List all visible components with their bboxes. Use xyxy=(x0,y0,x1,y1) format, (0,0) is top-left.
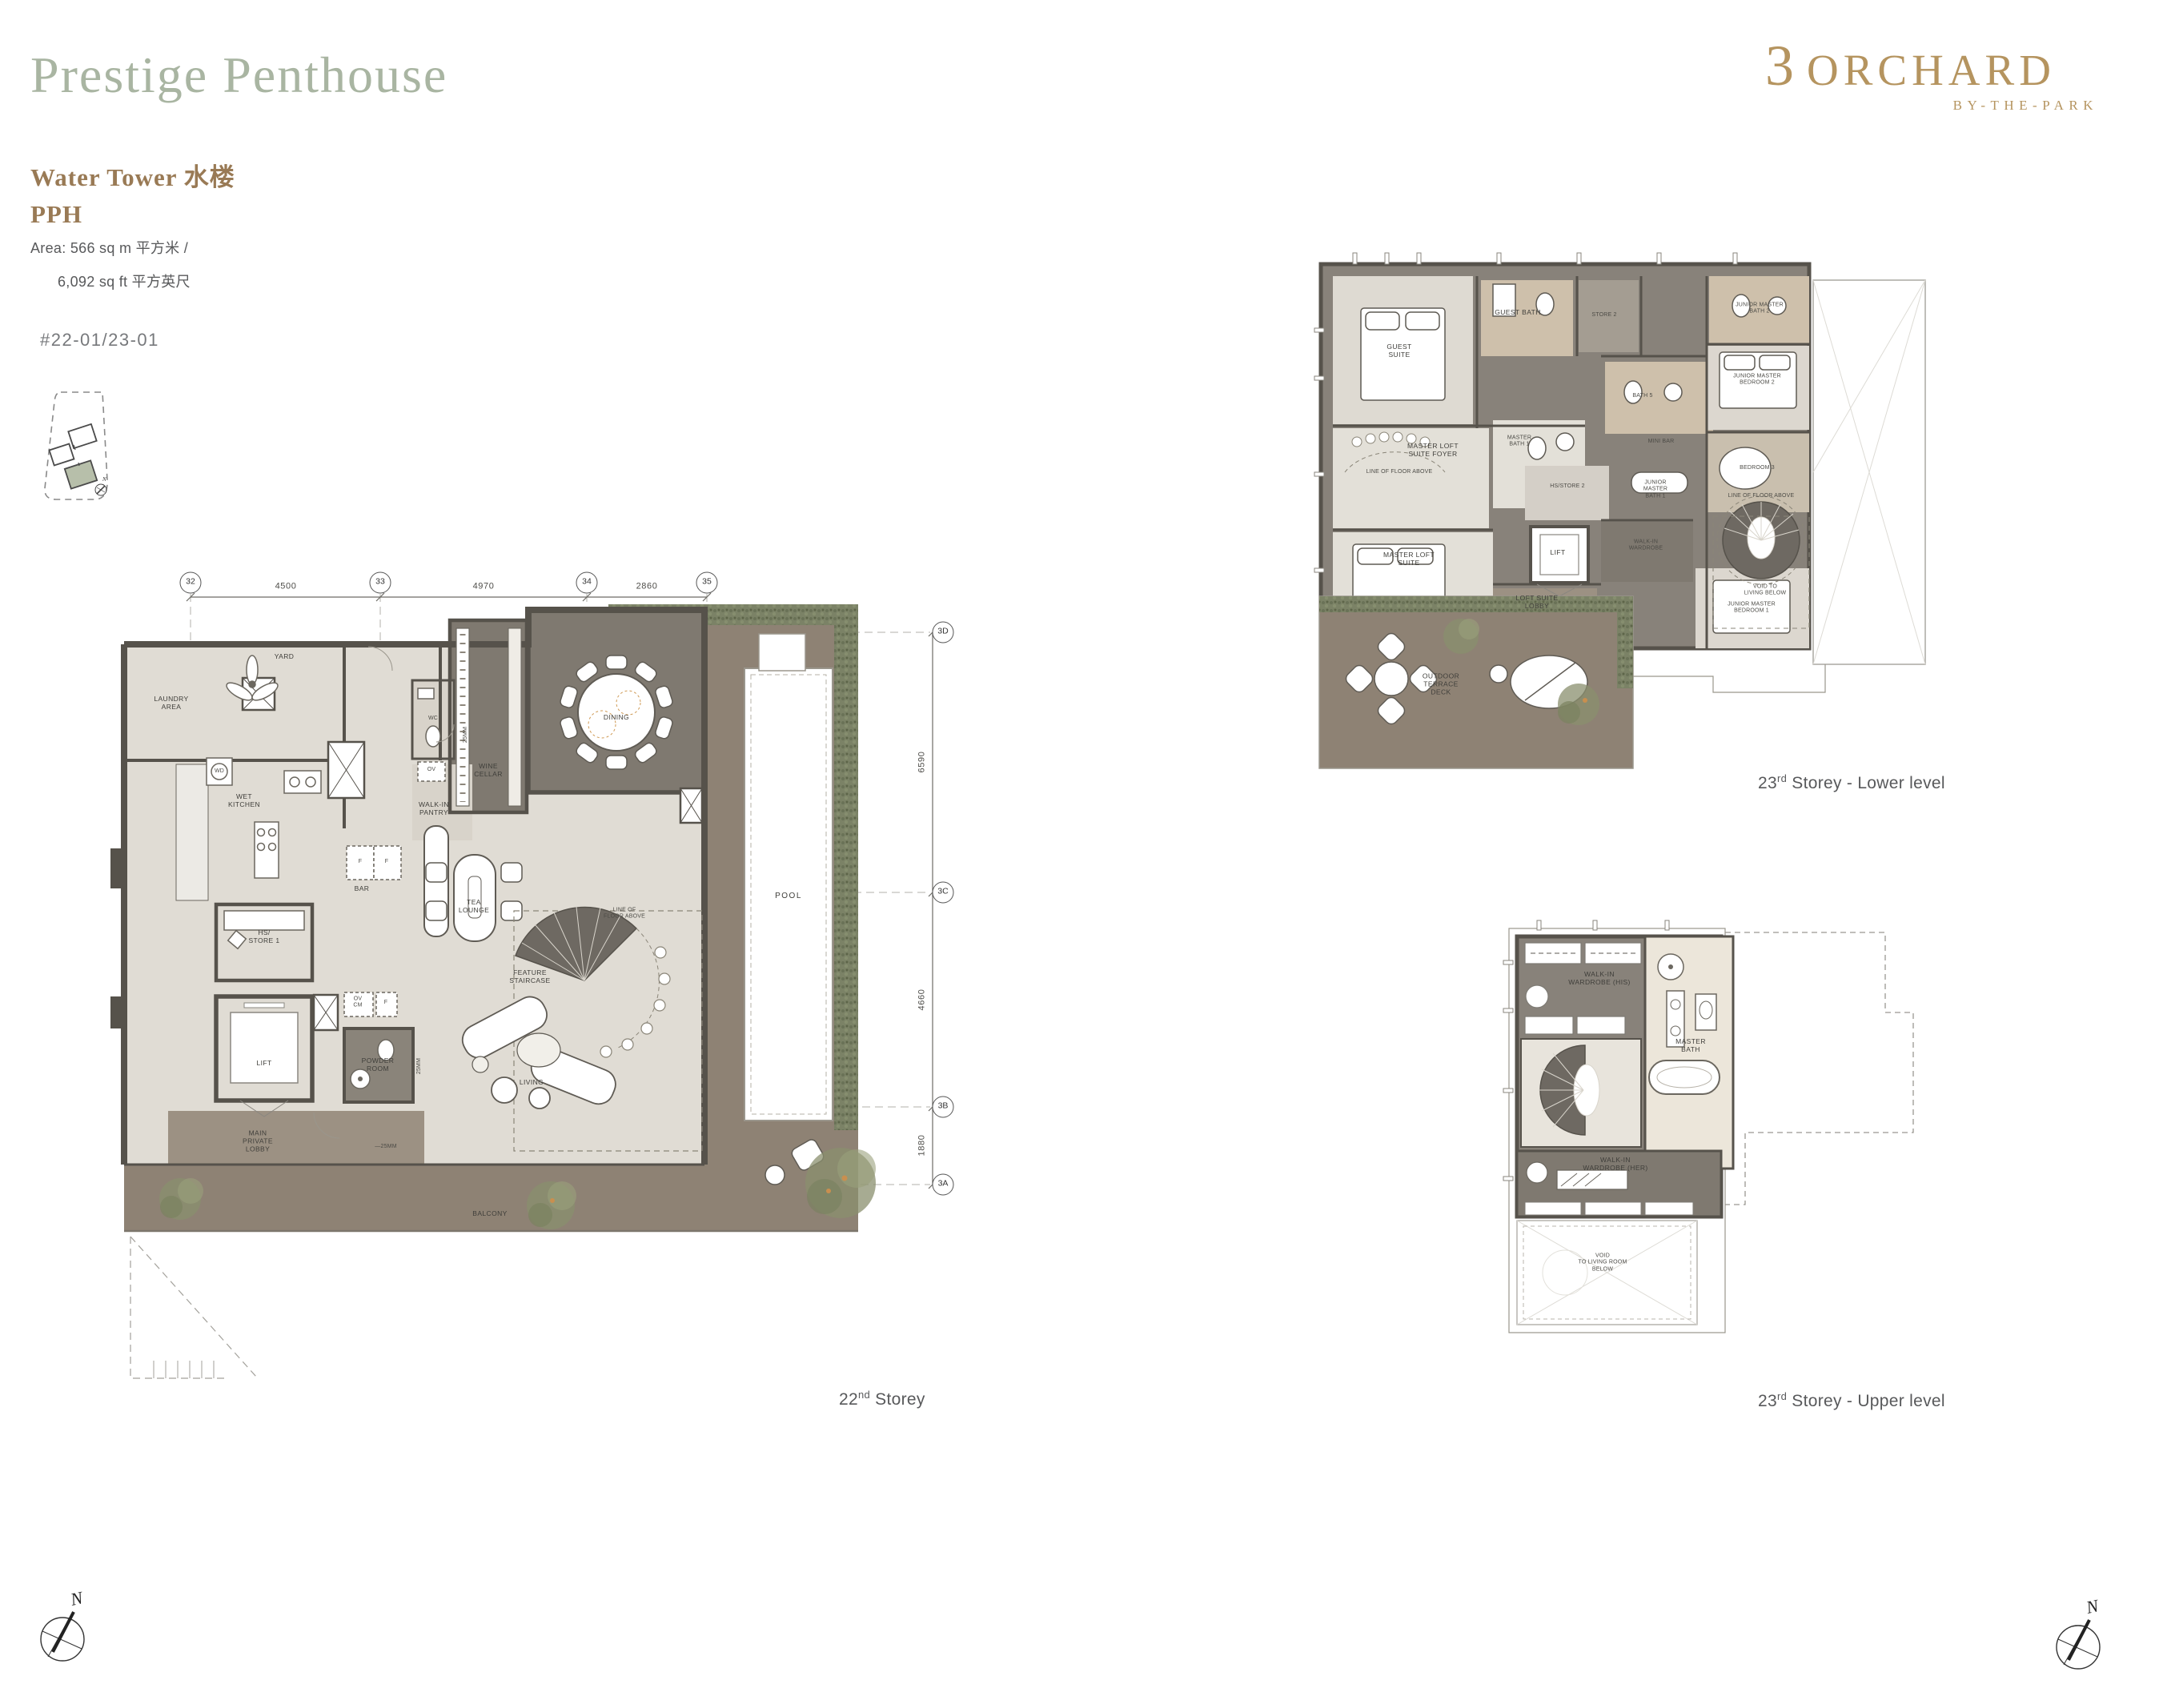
compass-left: N xyxy=(30,1586,102,1678)
plan-label: VOID TO LIVING ROOM BELOW xyxy=(1578,1253,1627,1273)
brochure-page: Prestige Penthouse Water Tower 水楼 PPH Ar… xyxy=(0,0,2159,1708)
plan-label: 3C xyxy=(933,882,954,904)
plan-label: WC xyxy=(428,716,438,722)
floor-plan-22-labels: 323334353D3C3B3A450049702860659046601880… xyxy=(104,560,985,1393)
unit-number: #22-01/23-01 xyxy=(40,331,159,349)
plan-label: 1880 xyxy=(917,1135,927,1157)
plan-label: WALK-IN PANTRY xyxy=(419,800,449,816)
plan-label: JUNIOR MASTER BEDROOM 2 xyxy=(1733,374,1781,387)
caption-text: Storey - Lower level xyxy=(1787,774,1945,792)
plan-label: HS/ STORE 1 xyxy=(248,928,279,944)
plan-label: 2860 xyxy=(636,581,658,591)
plan-label: 35 xyxy=(696,572,718,594)
plan-label: F xyxy=(384,1000,387,1006)
area-metric: Area: 566 sq m 平方米 / xyxy=(30,240,188,258)
tower-block-highlighted xyxy=(65,460,97,488)
plan-label: POOL xyxy=(775,892,802,901)
caption-ordinal: rd xyxy=(1777,772,1787,784)
plan-label: MASTER BATH xyxy=(1675,1037,1706,1053)
plan-label: LIVING xyxy=(520,1078,544,1086)
plan-label: OV xyxy=(427,767,436,773)
logo-tagline: BY-THE-PARK xyxy=(1765,98,2101,114)
plan-label: LOFT SUITE LOBBY xyxy=(1516,594,1559,610)
caption-number: 22 xyxy=(839,1390,858,1409)
plan-label: WALK-IN WARDROBE xyxy=(1629,539,1663,553)
caption-text: Storey - Upper level xyxy=(1787,1392,1945,1410)
plan-label: 25MM xyxy=(416,1058,423,1074)
plan-label: MAIN PRIVATE LOBBY xyxy=(243,1129,273,1154)
caption-number: 23 xyxy=(1758,774,1777,792)
compass-n-label: N xyxy=(2084,1595,2101,1618)
brand-logo: 3 ORCHARD BY-THE-PARK xyxy=(1765,37,2101,114)
unit-type: PPH xyxy=(30,202,82,227)
plan-label: 3B xyxy=(933,1097,954,1118)
site-compass-n: N xyxy=(102,476,106,483)
plan-label: HS/STORE 2 xyxy=(1550,483,1585,490)
plan-label: MINI BAR xyxy=(1648,439,1675,445)
floor-plan-23-lower: GUEST SUITEGUEST BATHSTORE 2JUNIOR MASTE… xyxy=(1297,232,1937,784)
plan-label: POWDER ROOM xyxy=(362,1056,395,1073)
floor-plan-23-upper: WALK-IN WARDROBE (HIS)MASTER BATHWALK-IN… xyxy=(1481,888,1937,1361)
caption-ordinal: nd xyxy=(858,1389,870,1401)
plan-label: 3A xyxy=(933,1174,954,1196)
plan-label: BALCONY xyxy=(472,1209,507,1217)
plan-label: WALK-IN WARDROBE (HER) xyxy=(1583,1156,1647,1172)
plan-label: WALK-IN WARDROBE (HIS) xyxy=(1568,970,1631,986)
compass-right: N xyxy=(2046,1594,2118,1686)
logo-name: ORCHARD xyxy=(1807,48,2056,92)
plan-label: WET KITCHEN xyxy=(228,792,260,808)
plan-label: VOID TO LIVING BELOW xyxy=(1744,584,1787,598)
plan-label: YARD xyxy=(275,652,295,660)
caption-23rd-lower: 23rd Storey - Lower level xyxy=(1758,773,1945,792)
plan-label: JUNIOR MASTER BATH 2 xyxy=(1736,303,1784,316)
plan-label: 4970 xyxy=(473,581,495,591)
plan-label: TEA LOUNGE xyxy=(459,898,489,914)
plan-label: MASTER LOFT SUITE FOYER xyxy=(1407,442,1459,458)
compass-n-label: N xyxy=(68,1587,86,1610)
logo-wordmark: 3 ORCHARD xyxy=(1765,37,2101,94)
caption-number: 23 xyxy=(1758,1392,1777,1410)
plan-label: LINE OF FLOOR ABOVE xyxy=(1366,469,1433,475)
plan-label: BATH 5 xyxy=(1632,393,1652,399)
plan-label: 33 xyxy=(370,572,391,594)
compass-icon: N xyxy=(30,1586,102,1674)
plan-label: MASTER BATH 1 xyxy=(1507,435,1531,449)
plan-label: BAR xyxy=(355,884,370,892)
plan-label: 34 xyxy=(576,572,598,594)
floor-plan-23-lower-labels: GUEST SUITEGUEST BATHSTORE 2JUNIOR MASTE… xyxy=(1297,232,1937,784)
tower-block xyxy=(50,443,74,465)
plan-label: FEATURE STAIRCASE xyxy=(509,968,550,984)
plan-label: GUEST SUITE xyxy=(1386,343,1411,359)
plan-label: 32 xyxy=(180,572,202,594)
page-title: Prestige Penthouse xyxy=(30,48,447,102)
plan-label: JUNIOR MASTER BEDROOM 1 xyxy=(1728,602,1776,615)
tower-block xyxy=(68,424,96,448)
area-imperial: 6,092 sq ft 平方英尺 xyxy=(58,274,191,291)
caption-22nd-storey: 22nd Storey xyxy=(839,1389,925,1408)
plan-label: LINE OF FLOOR ABOVE xyxy=(1728,493,1795,499)
plan-label: 6590 xyxy=(917,752,927,773)
caption-23rd-upper: 23rd Storey - Upper level xyxy=(1758,1391,1945,1409)
compass-icon: N xyxy=(2046,1594,2118,1682)
plan-label: 3D xyxy=(933,622,954,644)
plan-label: STORE 2 xyxy=(1591,312,1616,319)
site-key-plan-svg: N xyxy=(38,386,118,518)
plan-label: —25MM xyxy=(375,1144,396,1150)
logo-number: 3 xyxy=(1765,37,1794,94)
plan-label: OV CM xyxy=(353,996,362,1010)
caption-text: Storey xyxy=(870,1390,925,1409)
site-key-plan: N xyxy=(38,386,118,518)
plan-label: WINE CELLAR xyxy=(474,762,502,778)
plan-label: LAUNDRY AREA xyxy=(154,695,188,711)
site-towers xyxy=(50,424,98,489)
plan-label: JUNIOR MASTER BATH 1 xyxy=(1643,479,1667,499)
tower-name: Water Tower 水楼 xyxy=(30,165,235,190)
plan-label: F xyxy=(385,859,388,865)
plan-label: BEDROOM 3 xyxy=(1740,465,1775,471)
caption-ordinal: rd xyxy=(1777,1390,1787,1402)
plan-label: 25MM xyxy=(463,727,469,743)
plan-label: LIFT xyxy=(256,1059,271,1067)
plan-label: DINING xyxy=(604,713,629,721)
plan-label: LIFT xyxy=(1550,548,1565,556)
plan-label: GUEST BATH xyxy=(1495,308,1541,316)
plan-label: WD xyxy=(215,768,224,775)
plan-label: LINE OF FLOOR ABOVE xyxy=(604,908,645,921)
plan-label: MASTER LOFT SUITE xyxy=(1383,551,1435,567)
plan-label: 4660 xyxy=(917,989,927,1011)
plan-label: OUTDOOR TERRACE DECK xyxy=(1423,672,1459,697)
plan-label: 4500 xyxy=(275,581,297,591)
floor-plan-22: 323334353D3C3B3A450049702860659046601880… xyxy=(104,560,985,1393)
floor-plan-23-upper-labels: WALK-IN WARDROBE (HIS)MASTER BATHWALK-IN… xyxy=(1481,888,1937,1361)
plan-label: F xyxy=(359,859,362,865)
